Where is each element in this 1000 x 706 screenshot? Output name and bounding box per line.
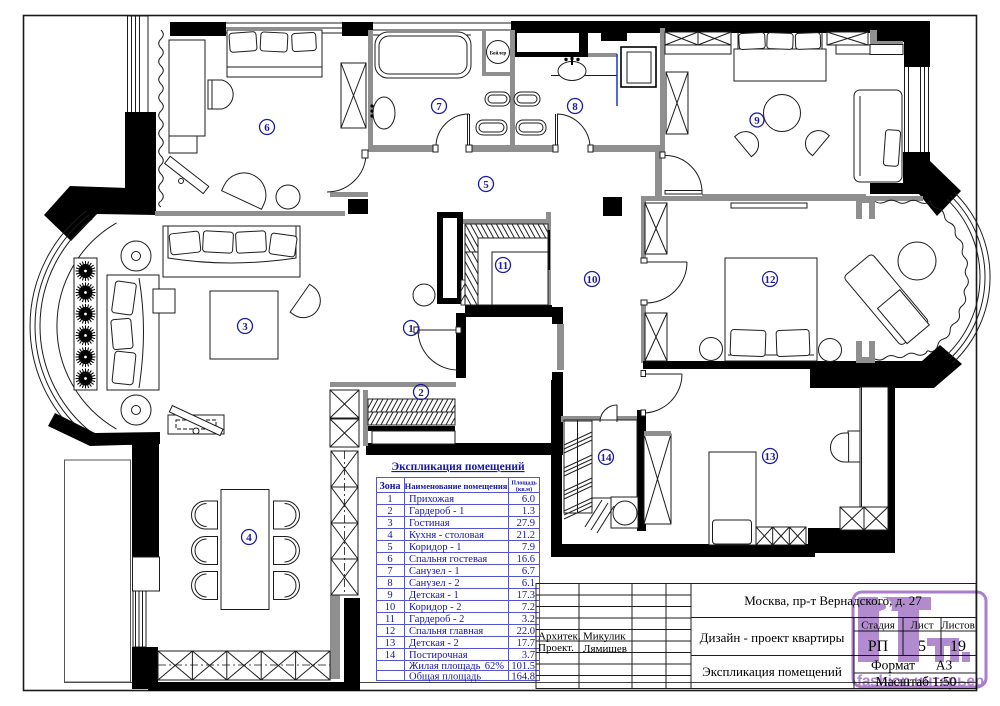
svg-text:17.3: 17.3 <box>517 590 535 601</box>
svg-text:6.0: 6.0 <box>522 494 535 505</box>
svg-text:12: 12 <box>765 274 777 286</box>
svg-text:fashion интерьер: fashion интерьер <box>857 673 984 690</box>
svg-text:Гостиная: Гостиная <box>409 518 450 529</box>
svg-text:13: 13 <box>765 451 777 463</box>
svg-text:Кухня - столовая: Кухня - столовая <box>409 530 484 541</box>
svg-text:16.6: 16.6 <box>517 554 535 565</box>
svg-text:Гардероб - 2: Гардероб - 2 <box>409 614 464 625</box>
svg-text:8: 8 <box>572 101 578 113</box>
svg-text:13: 13 <box>385 638 396 649</box>
svg-text:Постирочная: Постирочная <box>409 650 468 661</box>
svg-text:Микулик: Микулик <box>583 631 626 643</box>
svg-text:3: 3 <box>387 518 392 529</box>
svg-text:Проект.: Проект. <box>538 642 574 654</box>
svg-text:Дизайн - проект квартиры: Дизайн - проект квартиры <box>700 630 845 645</box>
svg-text:3.2: 3.2 <box>522 614 535 625</box>
svg-text:7: 7 <box>436 101 442 113</box>
svg-text:Площадь: Площадь <box>511 481 537 487</box>
svg-text:Общая площадь: Общая площадь <box>409 672 481 683</box>
svg-text:2: 2 <box>418 387 424 399</box>
svg-text:Коридор - 1: Коридор - 1 <box>409 542 461 553</box>
svg-text:1: 1 <box>408 323 414 335</box>
svg-text:6: 6 <box>387 554 392 565</box>
svg-text:5: 5 <box>387 542 392 553</box>
svg-text:3: 3 <box>242 321 248 333</box>
svg-text:4: 4 <box>246 532 252 544</box>
svg-text:Детская - 2: Детская - 2 <box>409 638 459 649</box>
svg-text:6.7: 6.7 <box>522 566 535 577</box>
svg-text:1.3: 1.3 <box>522 506 535 517</box>
svg-text:6: 6 <box>264 122 270 134</box>
svg-text:1: 1 <box>387 494 392 505</box>
svg-text:10: 10 <box>385 602 396 613</box>
svg-text:5: 5 <box>918 638 926 655</box>
svg-text:4: 4 <box>387 530 393 541</box>
svg-text:Детская - 1: Детская - 1 <box>409 590 459 601</box>
svg-text:Архитек.: Архитек. <box>538 631 581 643</box>
svg-text:Гардероб - 1: Гардероб - 1 <box>409 506 464 517</box>
svg-text:Санузел - 1: Санузел - 1 <box>409 566 460 577</box>
svg-text:(кв.м): (кв.м) <box>516 486 532 493</box>
svg-text:Лямишев: Лямишев <box>583 643 627 655</box>
svg-text:Бойлер: Бойлер <box>490 52 507 57</box>
svg-text:Санузел - 2: Санузел - 2 <box>409 578 460 589</box>
svg-text:10: 10 <box>587 274 599 286</box>
svg-text:6.1: 6.1 <box>522 578 535 589</box>
svg-text:Жилая площадь: Жилая площадь <box>409 661 481 672</box>
svg-text:9: 9 <box>754 115 760 127</box>
svg-text:17.7: 17.7 <box>517 638 535 649</box>
svg-text:2: 2 <box>387 506 392 517</box>
svg-text:14: 14 <box>385 650 396 661</box>
svg-text:9: 9 <box>387 590 392 601</box>
svg-text:Наименование помещения: Наименование помещения <box>405 481 508 491</box>
svg-text:7: 7 <box>387 566 392 577</box>
svg-text:Спальня гостевая: Спальня гостевая <box>409 554 487 565</box>
svg-text:27.9: 27.9 <box>517 518 535 529</box>
svg-text:22.0: 22.0 <box>517 626 535 637</box>
svg-text:11: 11 <box>385 614 395 625</box>
svg-text:12: 12 <box>385 626 396 637</box>
svg-text:Зона: Зона <box>379 481 400 492</box>
svg-text:101.5: 101.5 <box>511 661 535 672</box>
svg-text:164.8: 164.8 <box>511 672 535 683</box>
svg-text:Экспликация помещений: Экспликация помещений <box>702 664 842 679</box>
svg-text:14: 14 <box>601 452 613 464</box>
svg-text:Коридор - 2: Коридор - 2 <box>409 602 461 613</box>
svg-text:11: 11 <box>498 260 508 272</box>
svg-text:5: 5 <box>483 179 489 191</box>
svg-text:7.2: 7.2 <box>522 602 535 613</box>
svg-text:Экспликация помещений: Экспликация помещений <box>391 461 525 473</box>
svg-text:7.9: 7.9 <box>522 542 535 553</box>
svg-text:Спальня главная: Спальня главная <box>409 626 483 637</box>
svg-text:Листов: Листов <box>941 620 975 632</box>
svg-text:21.2: 21.2 <box>517 530 535 541</box>
svg-text:3.7: 3.7 <box>522 650 535 661</box>
svg-text:62%: 62% <box>485 661 505 672</box>
svg-text:Прихожая: Прихожая <box>409 494 454 505</box>
svg-text:8: 8 <box>387 578 392 589</box>
